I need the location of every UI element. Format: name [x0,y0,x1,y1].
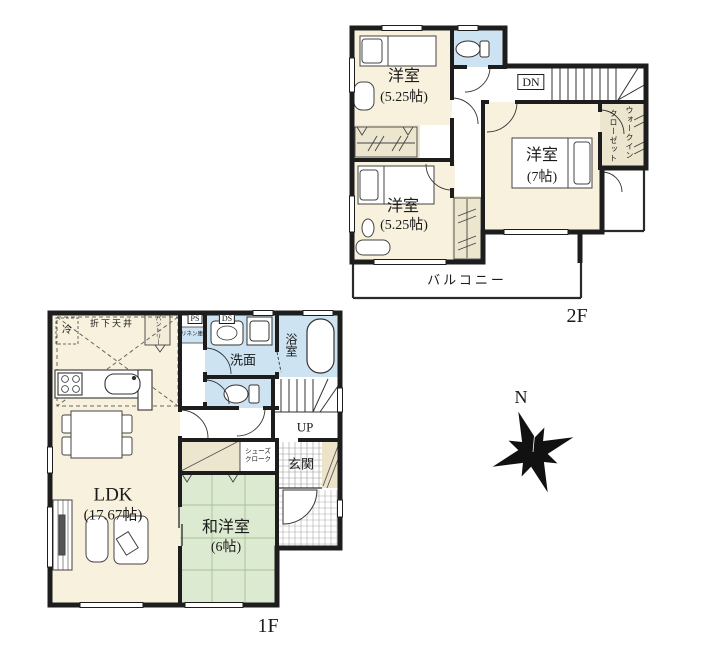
stairs2f-treads [552,68,646,100]
walk-in-closet-floor [600,102,646,168]
balcony-label: バルコニー [427,274,507,287]
bedroom1-name-label: 洋室 [388,69,420,85]
compass-rose [478,397,588,507]
ldk-name-label: LDK [93,486,132,505]
vanity-sink-icon [211,321,243,345]
japanese-room-name-label: 和洋室 [202,520,250,536]
washroom-label: 洗面 [230,354,256,367]
floor1-title: 1F [257,616,278,636]
bedroom2-size-label: (5.25帖) [380,219,428,233]
ldk-size-label: (17.67帖) [84,509,143,524]
japanese-room-size-label: (6帖) [211,541,241,555]
stairs1f-treads [274,379,339,412]
shoe-closet-label-line1: シューズ [245,449,271,456]
bedroom1-closet-floor [352,125,420,160]
floor2-plan [350,26,647,299]
dining-table-icon [62,411,132,458]
bathtub-icon [307,319,334,373]
lowered-ceiling-label: 折下天井 [90,320,134,329]
floorplan-drawing [0,0,701,664]
stairs-up-label: UP [297,421,314,434]
linen-closet-label: リネン庫 [181,332,203,338]
walk-in-closet-label-line1: ウォークイン [625,106,633,160]
bathroom-label: 浴室 [285,333,297,357]
washer-icon [247,317,272,345]
bedroom3-name-label: 洋室 [526,148,558,164]
bedroom2-closet-floor [452,196,483,262]
refrigerator-label: 冷 [62,326,72,336]
floorplan-page: 洋室 (5.25帖) 洋室 (5.25帖) 洋室 (7帖) DN ウォークイン … [0,0,701,664]
duct-space-label: DS [219,314,235,324]
shoe-closet-label-line2: クローク [245,457,271,464]
pipe-space-label: PS [188,314,203,324]
compass-north-label: N [515,388,528,406]
toilet2f-fixture-icon [456,41,489,57]
bedroom2-name-label: 洋室 [387,199,419,215]
walk-in-closet-label-line2: クローゼット [609,109,617,163]
entrance-label: 玄関 [288,458,314,471]
toilet1f-fixture-icon [224,385,259,403]
bedroom3-size-label: (7帖) [527,171,557,185]
stairs-down-label: DN [517,74,544,90]
floor2-title: 2F [566,306,587,326]
pantry-label: パントリー [154,315,160,345]
tv-board-icon [53,500,72,570]
bedroom1-size-label: (5.25帖) [380,91,428,105]
